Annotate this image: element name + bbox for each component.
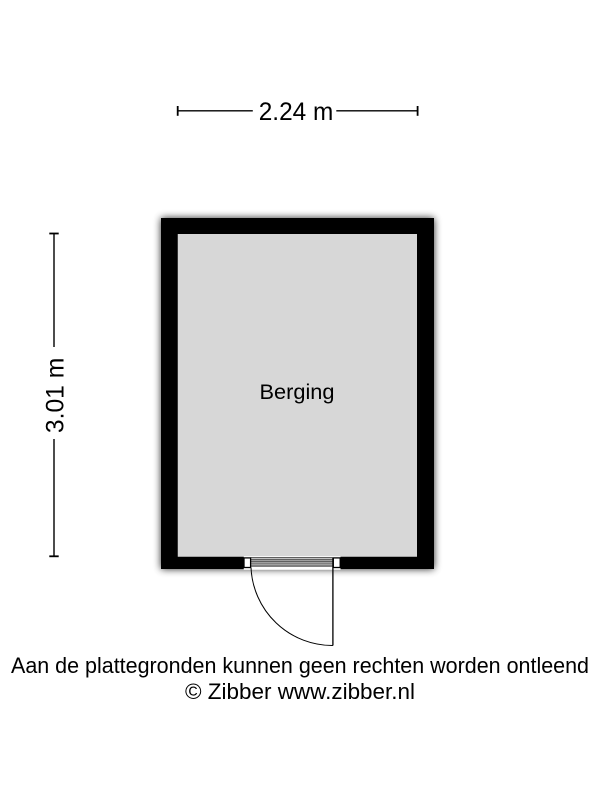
svg-text:3.01 m: 3.01 m (42, 358, 70, 434)
svg-text:2.24 m: 2.24 m (259, 98, 334, 126)
svg-text:Berging: Berging (260, 380, 335, 404)
svg-text:Aan de plattegronden kunnen ge: Aan de plattegronden kunnen geen rechten… (11, 653, 589, 678)
svg-text:© Zibber www.zibber.nl: © Zibber www.zibber.nl (185, 679, 415, 704)
